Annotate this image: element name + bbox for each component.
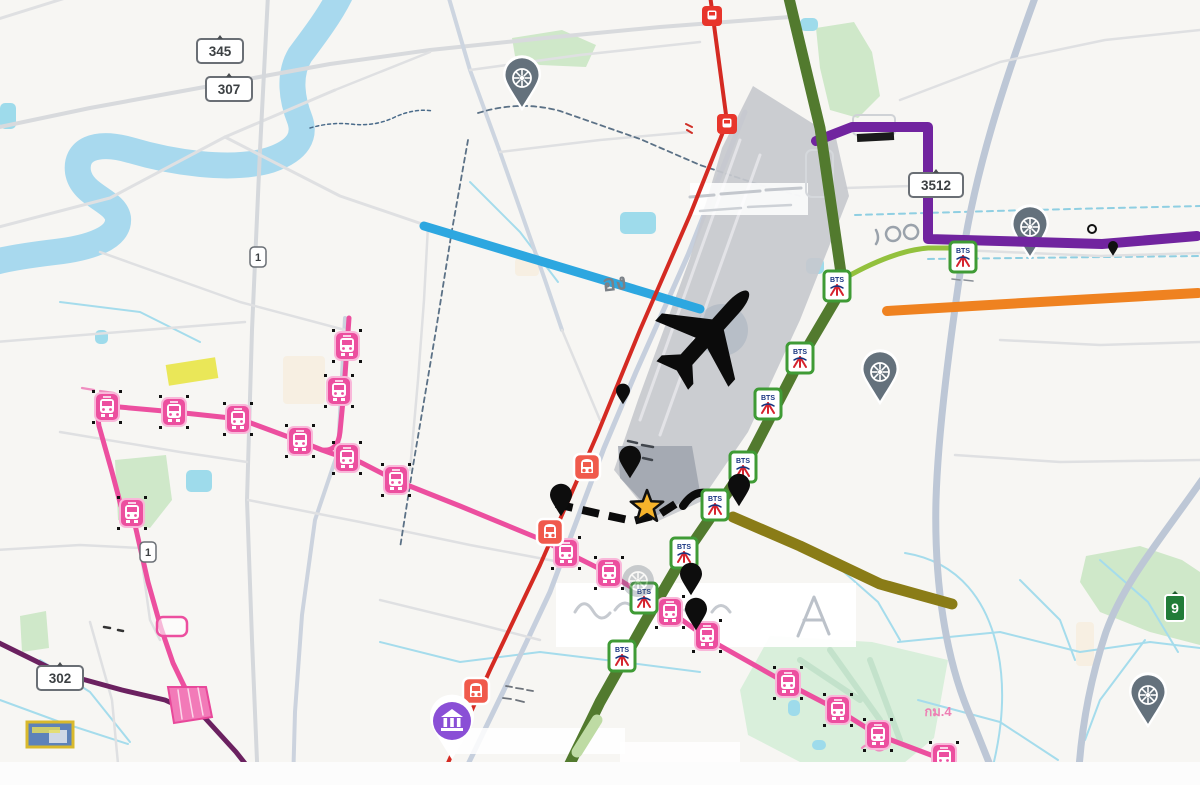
selection-handle: [381, 494, 384, 497]
selection-handle: [332, 360, 335, 363]
train-light: [334, 392, 337, 395]
train-foot: [603, 580, 607, 583]
map-edge-band: [0, 762, 1200, 785]
selection-handle: [773, 697, 776, 700]
train-foot: [341, 398, 345, 401]
train-foot: [126, 520, 130, 523]
small-image-overlay-stripe: [32, 727, 60, 733]
residential-patch: [1076, 622, 1094, 666]
bts-logo-text: BTS: [677, 544, 691, 551]
map-label-text: กม.4: [924, 704, 952, 719]
train-light: [341, 392, 344, 395]
bts-station-icon[interactable]: BTS: [950, 242, 976, 272]
selection-handle: [359, 360, 362, 363]
selection-handle: [223, 433, 226, 436]
train-wheel: [551, 534, 554, 537]
pond: [186, 470, 212, 492]
selection-handle: [223, 402, 226, 405]
dharma-wheel-icon: [1139, 686, 1157, 704]
train-window: [546, 527, 554, 532]
train-light: [295, 442, 298, 445]
bts-logo-text: BTS: [708, 496, 722, 503]
pink-line-station-icon[interactable]: [863, 718, 893, 752]
selection-handle: [929, 741, 932, 744]
red-line-marker-icon[interactable]: [702, 6, 722, 26]
train-foot: [240, 426, 244, 429]
train-window: [102, 401, 112, 406]
bts-logo-text: BTS: [615, 647, 629, 654]
train-foot: [349, 353, 353, 356]
road-shield-345: 345: [197, 35, 243, 63]
train-foot: [611, 580, 615, 583]
selection-handle: [381, 463, 384, 466]
selection-handle: [285, 455, 288, 458]
bts-logo-text: BTS: [830, 277, 844, 284]
shield-label: 3512: [921, 178, 951, 193]
red-line-station-icon[interactable]: [574, 454, 600, 480]
bts-station-icon[interactable]: BTS: [787, 343, 813, 373]
selection-handle: [312, 455, 315, 458]
selection-handle: [359, 329, 362, 332]
selection-handle: [119, 390, 122, 393]
pink-line-station-icon[interactable]: [823, 693, 853, 727]
train-light: [134, 514, 137, 517]
selection-handle: [863, 718, 866, 721]
train-window: [391, 474, 401, 479]
selection-handle: [578, 567, 581, 570]
selection-handle: [92, 421, 95, 424]
dharma-wheel-icon: [871, 363, 889, 381]
train-foot: [701, 643, 705, 646]
train-foot: [302, 448, 306, 451]
selection-handle: [823, 724, 826, 727]
selection-handle: [890, 718, 893, 721]
wheel-hub: [1146, 693, 1150, 697]
train-window: [604, 567, 614, 572]
selection-handle: [117, 496, 120, 499]
selection-handle: [682, 595, 685, 598]
park-area: [20, 611, 49, 652]
selection-handle: [186, 395, 189, 398]
train-light: [946, 759, 949, 762]
train-foot: [672, 619, 676, 622]
dharma-wheel-icon: [513, 69, 531, 87]
red-line-marker-icon[interactable]: [717, 114, 737, 134]
train-window: [127, 507, 137, 512]
wheel-hub: [636, 579, 640, 583]
shield-label: 1: [255, 252, 261, 264]
road-shield-3512: 3512: [909, 169, 963, 197]
dharma-wheel-icon: [629, 572, 647, 590]
pink-line-station-icon[interactable]: [655, 595, 685, 629]
selection-handle: [682, 626, 685, 629]
train-foot: [709, 643, 713, 646]
train-foot: [568, 560, 572, 563]
selection-handle: [578, 536, 581, 539]
selection-handle: [312, 424, 315, 427]
train-light: [342, 459, 345, 462]
red-line-station-icon[interactable]: [537, 519, 563, 545]
train-light: [790, 684, 793, 687]
train-window: [939, 752, 949, 757]
selection-handle: [800, 697, 803, 700]
train-foot: [232, 426, 236, 429]
selection-handle: [332, 441, 335, 444]
shield-label: 307: [218, 82, 241, 97]
bts-logo-text: BTS: [761, 395, 775, 402]
train-light: [398, 481, 401, 484]
selection-handle: [408, 494, 411, 497]
selection-handle: [551, 567, 554, 570]
train-light: [611, 574, 614, 577]
building-pillar: [444, 718, 448, 727]
bts-station-icon[interactable]: BTS: [702, 490, 728, 520]
train-wheel: [588, 469, 591, 472]
train-foot: [832, 717, 836, 720]
road-shield-1: 1: [140, 542, 156, 562]
bts-station-icon[interactable]: BTS: [609, 641, 635, 671]
train-light: [709, 637, 712, 640]
train-window: [833, 704, 843, 709]
selection-handle: [692, 650, 695, 653]
road-shield-302: 302: [37, 662, 83, 690]
selection-handle: [773, 666, 776, 669]
selection-handle: [324, 374, 327, 377]
train-window: [724, 120, 730, 124]
selection-handle: [119, 421, 122, 424]
train-light: [783, 684, 786, 687]
selection-handle: [890, 749, 893, 752]
pond: [620, 212, 656, 234]
train-foot: [341, 353, 345, 356]
pink-line-station-icon[interactable]: [324, 374, 354, 408]
selection-handle: [594, 556, 597, 559]
selection-handle: [863, 749, 866, 752]
bts-logo-text: BTS: [736, 458, 750, 465]
wheel-hub: [878, 370, 882, 374]
selection-handle: [359, 441, 362, 444]
selection-handle: [594, 587, 597, 590]
train-light: [702, 637, 705, 640]
train-foot: [782, 690, 786, 693]
road-shield-307: 307: [206, 73, 252, 101]
pond: [800, 18, 818, 31]
pink-line-station-icon[interactable]: [223, 402, 253, 436]
selection-handle: [359, 472, 362, 475]
train-window: [169, 406, 179, 411]
train-foot: [134, 520, 138, 523]
map-label-text: อง: [601, 269, 627, 296]
train-foot: [398, 487, 402, 490]
train-foot: [109, 414, 113, 417]
selection-handle: [285, 424, 288, 427]
train-light: [109, 408, 112, 411]
bts-logo-text: BTS: [956, 248, 970, 255]
train-foot: [168, 419, 172, 422]
building-pillar: [457, 718, 461, 727]
train-window: [873, 729, 883, 734]
pink-line-station-icon[interactable]: [117, 496, 147, 530]
selection-handle: [800, 666, 803, 669]
train-window: [233, 413, 243, 418]
building-base: [441, 728, 463, 731]
train-foot: [880, 742, 884, 745]
train-window: [709, 12, 715, 16]
map-background: [0, 0, 1200, 785]
train-light: [568, 554, 571, 557]
train-light: [561, 554, 564, 557]
map-canvas[interactable]: BTSBTSBTSBTSBTSBTSBTSBTSBTS3453073023512…: [0, 0, 1200, 785]
train-light: [169, 413, 172, 416]
train-foot: [333, 398, 337, 401]
train-foot: [349, 465, 353, 468]
train-light: [672, 613, 675, 616]
dharma-wheel-icon: [1021, 218, 1039, 236]
temple-icon-faded: [622, 565, 654, 597]
selection-handle: [92, 390, 95, 393]
selection-handle: [956, 741, 959, 744]
train-foot: [341, 465, 345, 468]
selection-handle: [159, 395, 162, 398]
selection-handle: [144, 496, 147, 499]
train-wheel: [471, 693, 474, 696]
pink-line-station-icon[interactable]: [594, 556, 624, 590]
selection-handle: [621, 556, 624, 559]
train-light: [873, 736, 876, 739]
selection-handle: [655, 626, 658, 629]
building-pillar: [450, 718, 454, 727]
train-window: [295, 435, 305, 440]
train-window: [472, 686, 480, 691]
train-foot: [176, 419, 180, 422]
train-foot: [840, 717, 844, 720]
train-light: [840, 711, 843, 714]
train-light: [939, 759, 942, 762]
residential-patch: [283, 356, 325, 404]
selection-handle: [186, 426, 189, 429]
train-wheel: [582, 469, 585, 472]
shield-label: 9: [1171, 600, 1179, 616]
selection-handle: [117, 527, 120, 530]
train-light: [349, 459, 352, 462]
train-light: [342, 347, 345, 350]
pond: [788, 700, 800, 716]
train-light: [604, 574, 607, 577]
train-foot: [390, 487, 394, 490]
train-window: [342, 340, 352, 345]
pink-line-station-icon[interactable]: [332, 329, 362, 363]
map-svg: BTSBTSBTSBTSBTSBTSBTSBTSBTS3453073023512…: [0, 0, 1200, 785]
train-wheel: [477, 693, 480, 696]
selection-handle: [850, 693, 853, 696]
train-light: [391, 481, 394, 484]
selection-handle: [719, 619, 722, 622]
train-window: [334, 385, 344, 390]
road-shield-9: 9: [1165, 591, 1185, 621]
pink-outline-box: [157, 617, 187, 636]
pink-line-station-icon[interactable]: [159, 395, 189, 429]
pink-line-station-icon[interactable]: [332, 441, 362, 475]
pink-line-station-icon[interactable]: [285, 424, 315, 458]
train-foot: [872, 742, 876, 745]
erased-label-patch: [455, 728, 625, 754]
wheel-hub: [1028, 225, 1032, 229]
selection-handle: [823, 693, 826, 696]
selection-handle: [351, 405, 354, 408]
train-window: [702, 630, 712, 635]
selection-handle: [719, 650, 722, 653]
train-light: [127, 514, 130, 517]
train-foot: [560, 560, 564, 563]
train-foot: [790, 690, 794, 693]
selection-handle: [159, 426, 162, 429]
bts-logo-text: BTS: [793, 349, 807, 356]
train-foot: [101, 414, 105, 417]
wheel-hub: [520, 76, 524, 80]
selection-handle: [332, 329, 335, 332]
train-light: [233, 420, 236, 423]
train-foot: [294, 448, 298, 451]
erased-label-patch: [620, 742, 740, 762]
train-wheel: [545, 534, 548, 537]
selection-handle: [850, 724, 853, 727]
train-light: [880, 736, 883, 739]
pink-line-station-icon[interactable]: [381, 463, 411, 497]
train-window: [665, 606, 675, 611]
train-light: [302, 442, 305, 445]
shield-label: 1: [145, 547, 151, 559]
pond: [812, 740, 826, 750]
selection-handle: [324, 405, 327, 408]
red-line-station-icon[interactable]: [463, 678, 489, 704]
selection-handle: [351, 374, 354, 377]
bts-station-icon[interactable]: BTS: [755, 389, 781, 419]
train-light: [833, 711, 836, 714]
train-window: [783, 677, 793, 682]
train-foot: [664, 619, 668, 622]
train-light: [176, 413, 179, 416]
selection-handle: [250, 433, 253, 436]
selection-handle: [408, 463, 411, 466]
pink-line-depot: [168, 687, 212, 723]
train-window: [342, 452, 352, 457]
train-window: [583, 462, 591, 467]
train-window: [561, 547, 571, 552]
bts-station-icon[interactable]: BTS: [824, 271, 850, 301]
train-light: [349, 347, 352, 350]
pink-line-station-icon[interactable]: [773, 666, 803, 700]
shield-label: 345: [209, 44, 232, 59]
selection-handle: [250, 402, 253, 405]
selection-handle: [332, 472, 335, 475]
road-shield-1: 1: [250, 247, 266, 267]
shield-label: 302: [49, 671, 72, 686]
selection-handle: [144, 527, 147, 530]
train-light: [102, 408, 105, 411]
train-light: [240, 420, 243, 423]
pink-line-station-icon[interactable]: [92, 390, 122, 424]
train-light: [665, 613, 668, 616]
